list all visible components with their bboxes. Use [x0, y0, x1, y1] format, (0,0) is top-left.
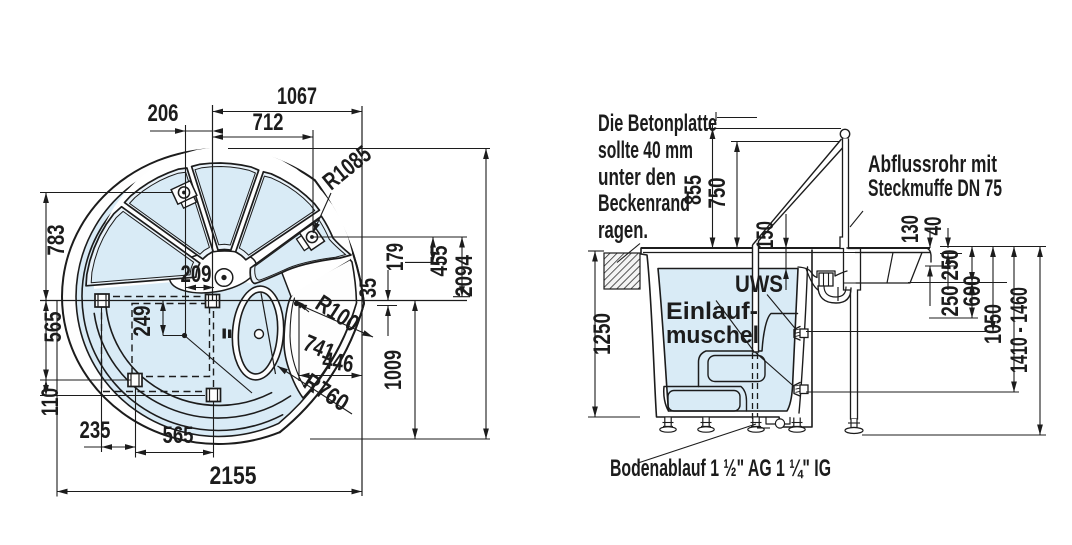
svg-text:209: 209: [181, 261, 212, 288]
svg-text:Einlauf-: Einlauf-: [666, 298, 758, 325]
svg-text:Steckmuffe DN 75: Steckmuffe DN 75: [868, 175, 1002, 202]
svg-text:40: 40: [920, 217, 947, 236]
svg-text:UWS: UWS: [735, 271, 783, 298]
svg-text:455: 455: [426, 246, 453, 277]
svg-text:Abflussrohr mit: Abflussrohr mit: [868, 151, 997, 178]
svg-text:unter den: unter den: [598, 164, 676, 191]
svg-text:565: 565: [163, 422, 194, 449]
svg-text:1067: 1067: [277, 83, 317, 110]
svg-text:Bodenablauf 1 ½" AG 1 ¼" IG: Bodenablauf 1 ½" AG 1 ¼" IG: [610, 455, 831, 482]
svg-text:2094: 2094: [451, 254, 478, 297]
svg-text:sollte 40 mm: sollte 40 mm: [598, 137, 693, 164]
svg-text:150: 150: [752, 221, 779, 249]
svg-text:1410 - 1460: 1410 - 1460: [1006, 287, 1033, 373]
svg-text:783: 783: [43, 225, 70, 256]
svg-text:600: 600: [959, 276, 986, 307]
svg-text:565: 565: [40, 312, 67, 343]
svg-text:Beckenrand: Beckenrand: [598, 190, 690, 217]
svg-text:1009: 1009: [380, 350, 407, 390]
svg-text:1250: 1250: [589, 313, 616, 355]
svg-text:Die Betonplatte: Die Betonplatte: [598, 110, 717, 137]
svg-text:muschel: muschel: [666, 322, 759, 349]
svg-text:179: 179: [382, 243, 409, 271]
svg-text:249: 249: [129, 306, 156, 337]
svg-text:235: 235: [80, 417, 111, 444]
svg-text:ragen.: ragen.: [598, 217, 648, 244]
svg-text:110: 110: [37, 388, 64, 416]
svg-text:206: 206: [148, 100, 179, 127]
svg-text:446: 446: [321, 347, 355, 378]
svg-text:2155: 2155: [210, 462, 257, 490]
svg-text:750: 750: [704, 178, 731, 209]
svg-text:712: 712: [253, 109, 284, 136]
svg-text:35: 35: [355, 278, 382, 298]
svg-text:1050: 1050: [980, 304, 1007, 344]
